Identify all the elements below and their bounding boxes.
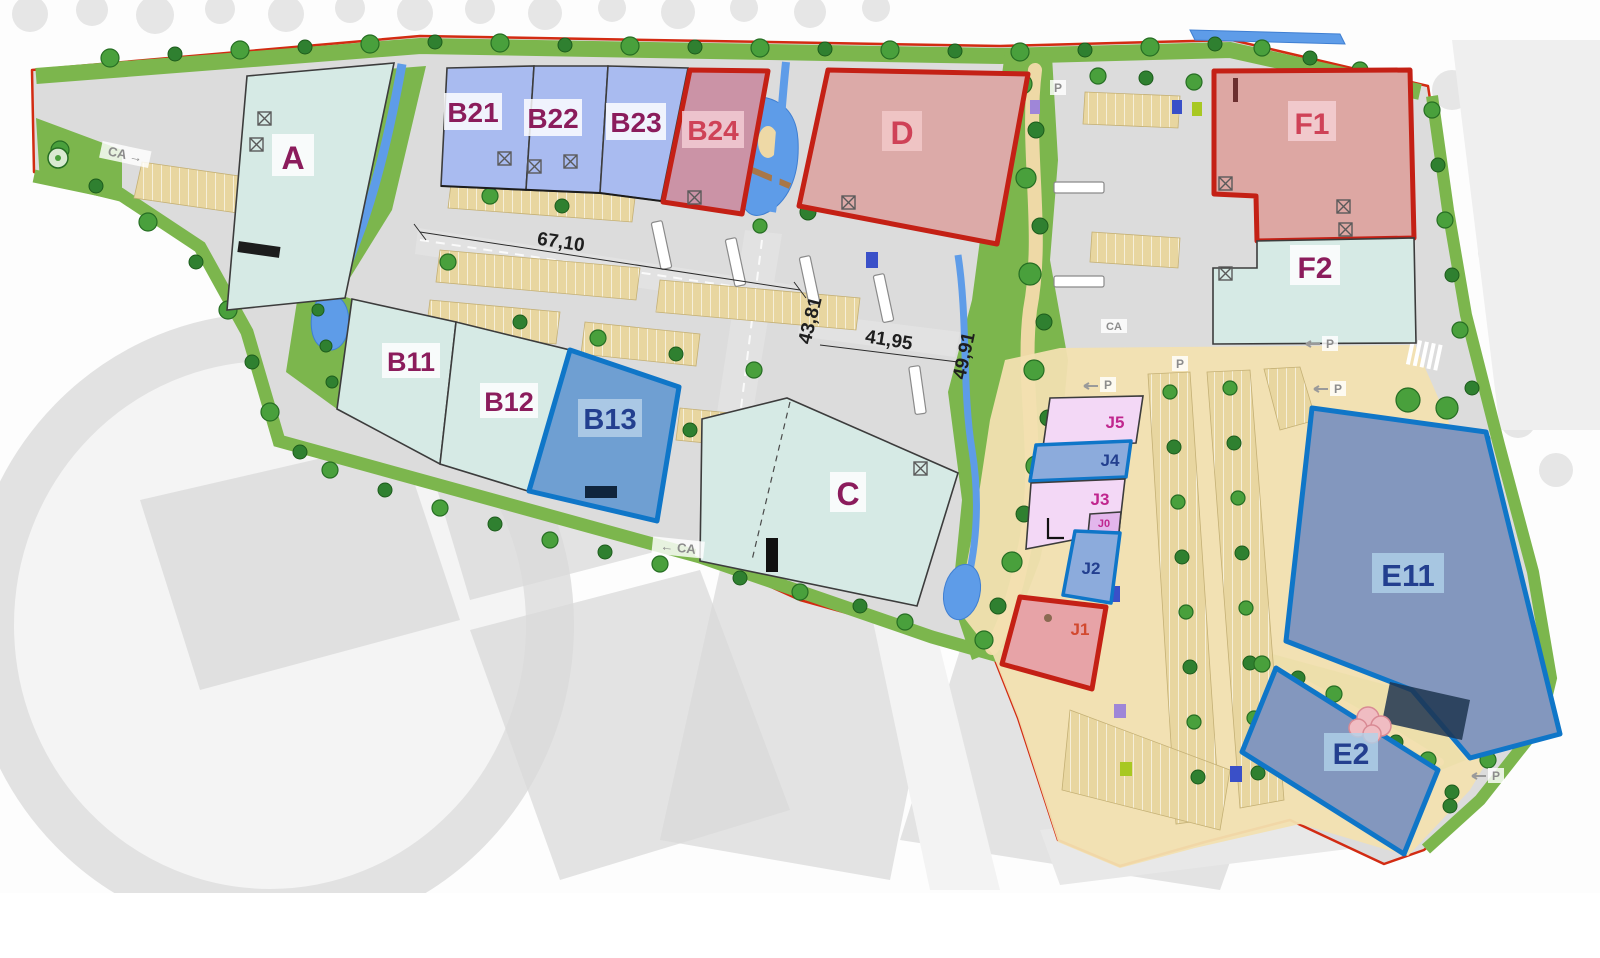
plot-label-B13: B13 <box>578 399 642 437</box>
plot-label-D: D <box>882 111 922 151</box>
plot-label-B21: B21 <box>444 93 502 130</box>
parking-marker-3: P <box>1172 356 1188 371</box>
plot-label-J1: J1 <box>1071 620 1090 639</box>
svg-text:J0: J0 <box>1098 518 1110 530</box>
svg-text:F2: F2 <box>1297 252 1332 285</box>
plot-label-F2: F2 <box>1290 245 1340 285</box>
svg-text:B24: B24 <box>687 115 739 146</box>
plot-label-B23: B23 <box>606 103 666 140</box>
svg-text:J2: J2 <box>1082 559 1101 578</box>
plot-label-B24: B24 <box>682 111 744 148</box>
legend: ACTIVITE CLE EN MAIN ACTIVITE SERVICE LO… <box>0 893 1600 958</box>
svg-text:D: D <box>890 115 913 151</box>
svg-text:P: P <box>1492 769 1500 783</box>
plot-label-E11: E11 <box>1372 553 1444 593</box>
masterplan-page: A B21 B22 B23 B24 D F1 F2 B11 B12 B13 C … <box>0 0 1600 958</box>
plot-label-J5: J5 <box>1106 413 1125 432</box>
plot-label-J2: J2 <box>1082 559 1101 578</box>
svg-text:CA: CA <box>1106 321 1122 333</box>
svg-text:P: P <box>1334 382 1342 396</box>
plot-label-B11: B11 <box>382 343 440 378</box>
plot-label-J3: J3 <box>1091 490 1110 509</box>
plot-label-E2: E2 <box>1324 733 1378 771</box>
plot-label-A: A <box>272 134 314 176</box>
plot-label-F1: F1 <box>1288 101 1336 141</box>
svg-text:E2: E2 <box>1333 738 1370 771</box>
svg-text:P: P <box>1326 337 1334 351</box>
svg-text:P: P <box>1054 81 1062 95</box>
plot-label-C: C <box>830 472 866 512</box>
svg-text:B11: B11 <box>387 347 435 377</box>
svg-text:J3: J3 <box>1091 490 1110 509</box>
svg-text:F1: F1 <box>1294 108 1329 141</box>
svg-text:B23: B23 <box>610 107 661 138</box>
plot-label-B12: B12 <box>480 383 538 418</box>
svg-text:E11: E11 <box>1381 558 1434 593</box>
svg-text:C: C <box>836 476 859 512</box>
site-plan: A B21 B22 B23 B24 D F1 F2 B11 B12 B13 C … <box>0 0 1600 958</box>
plot-label-J4: J4 <box>1101 451 1120 470</box>
svg-text:J1: J1 <box>1071 620 1090 639</box>
svg-text:B21: B21 <box>447 97 498 128</box>
svg-text:A: A <box>281 140 304 176</box>
svg-text:B12: B12 <box>484 387 534 417</box>
svg-text:B22: B22 <box>527 103 578 134</box>
svg-text:P: P <box>1176 357 1184 371</box>
svg-text:B13: B13 <box>583 404 636 436</box>
ca-marker: CA <box>1101 319 1127 333</box>
parking-marker-1: P <box>1050 80 1066 95</box>
plot-J5[interactable] <box>1043 396 1143 447</box>
svg-text:J5: J5 <box>1106 413 1125 432</box>
svg-text:P: P <box>1104 378 1112 392</box>
plot-label-B22: B22 <box>524 99 582 136</box>
svg-text:J4: J4 <box>1101 451 1120 470</box>
plot-label-J0: J0 <box>1098 518 1110 530</box>
